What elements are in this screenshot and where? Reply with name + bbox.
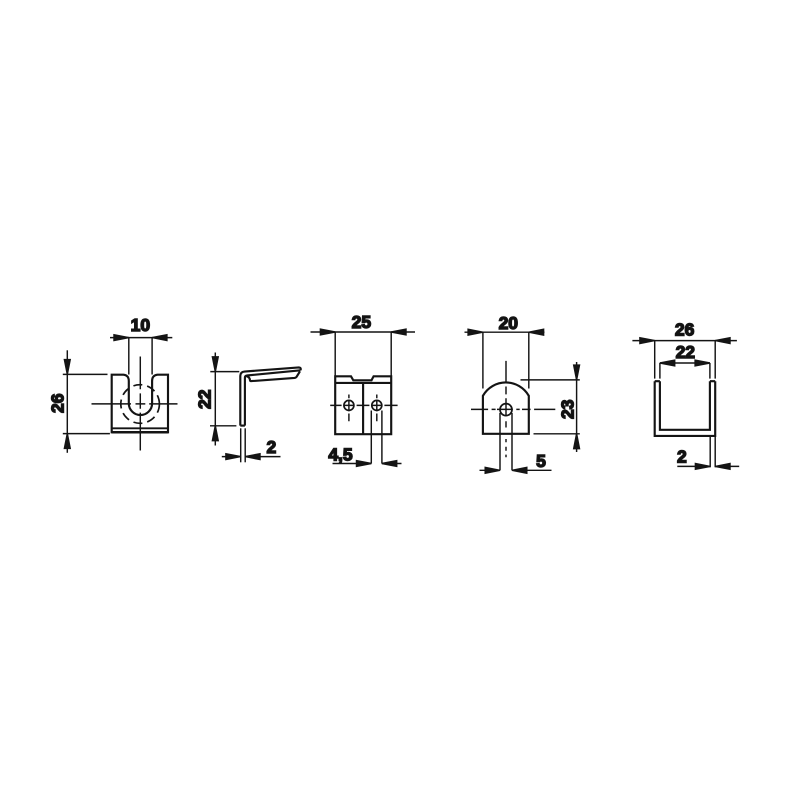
svg-text:10: 10 <box>131 315 151 335</box>
svg-text:20: 20 <box>499 313 519 333</box>
svg-text:2: 2 <box>267 437 277 457</box>
svg-text:5: 5 <box>536 451 546 471</box>
svg-text:22: 22 <box>676 342 696 362</box>
svg-text:23: 23 <box>557 399 577 419</box>
svg-text:22: 22 <box>194 389 214 409</box>
svg-text:26: 26 <box>675 319 695 339</box>
svg-text:4,5: 4,5 <box>328 444 353 464</box>
svg-text:26: 26 <box>47 393 67 413</box>
svg-text:25: 25 <box>352 312 372 332</box>
svg-text:2: 2 <box>677 447 687 467</box>
